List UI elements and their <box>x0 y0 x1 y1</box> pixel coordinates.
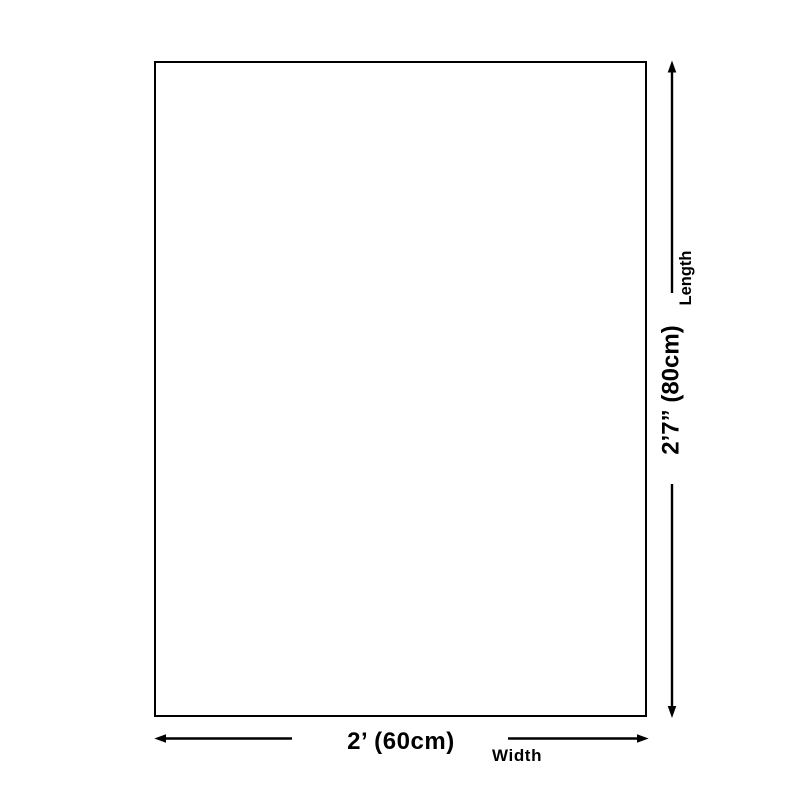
svg-text:2’ (60cm): 2’ (60cm) <box>347 728 455 755</box>
svg-text:2’7” (80cm): 2’7” (80cm) <box>658 325 685 454</box>
svg-text:Width: Width <box>492 746 542 765</box>
svg-text:Length: Length <box>677 251 695 306</box>
